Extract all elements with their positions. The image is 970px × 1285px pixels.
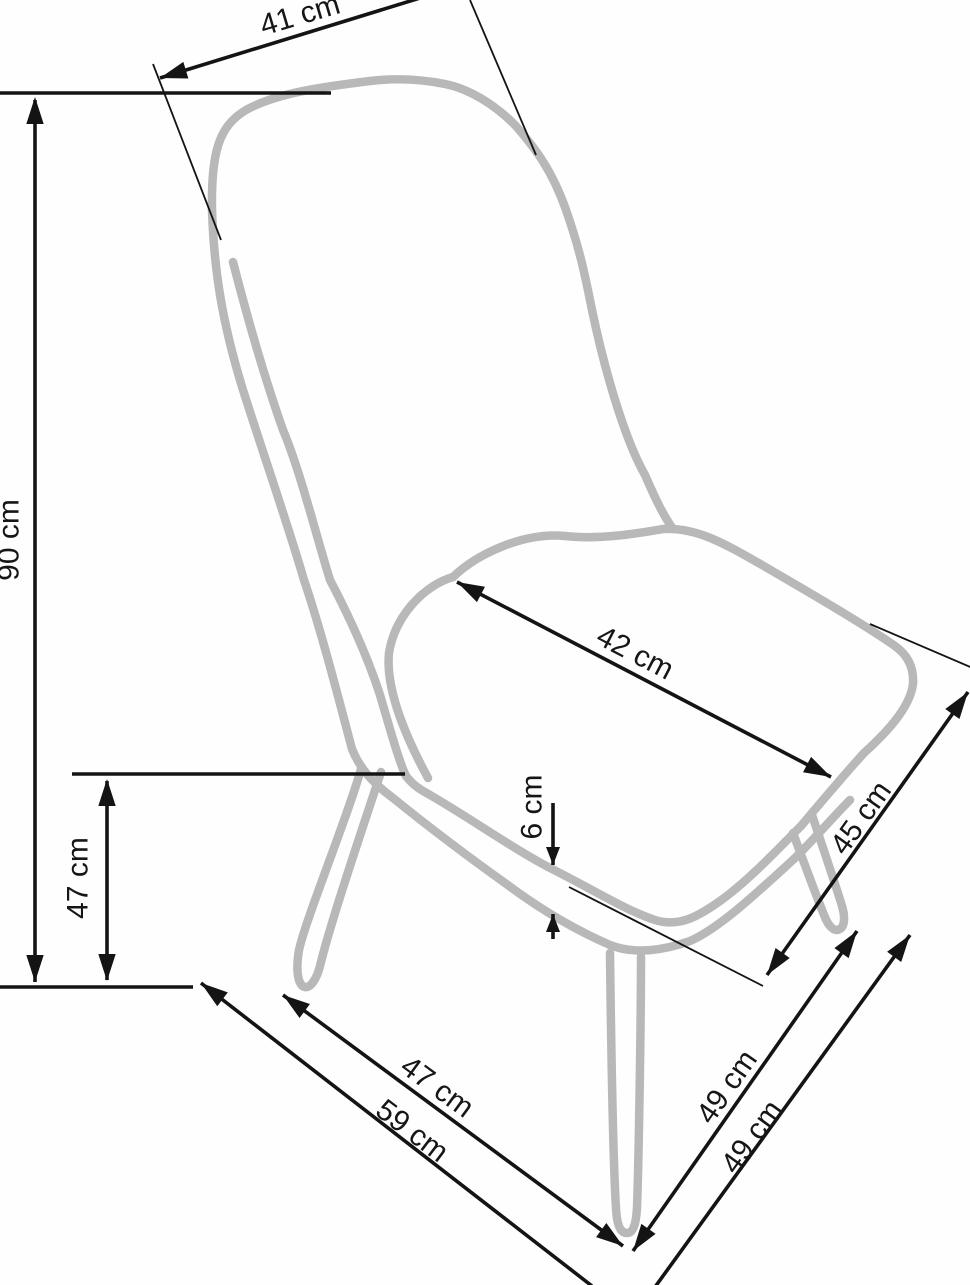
svg-text:6 cm: 6 cm xyxy=(516,774,549,839)
svg-text:90 cm: 90 cm xyxy=(0,499,26,581)
svg-text:47 cm: 47 cm xyxy=(62,837,95,919)
